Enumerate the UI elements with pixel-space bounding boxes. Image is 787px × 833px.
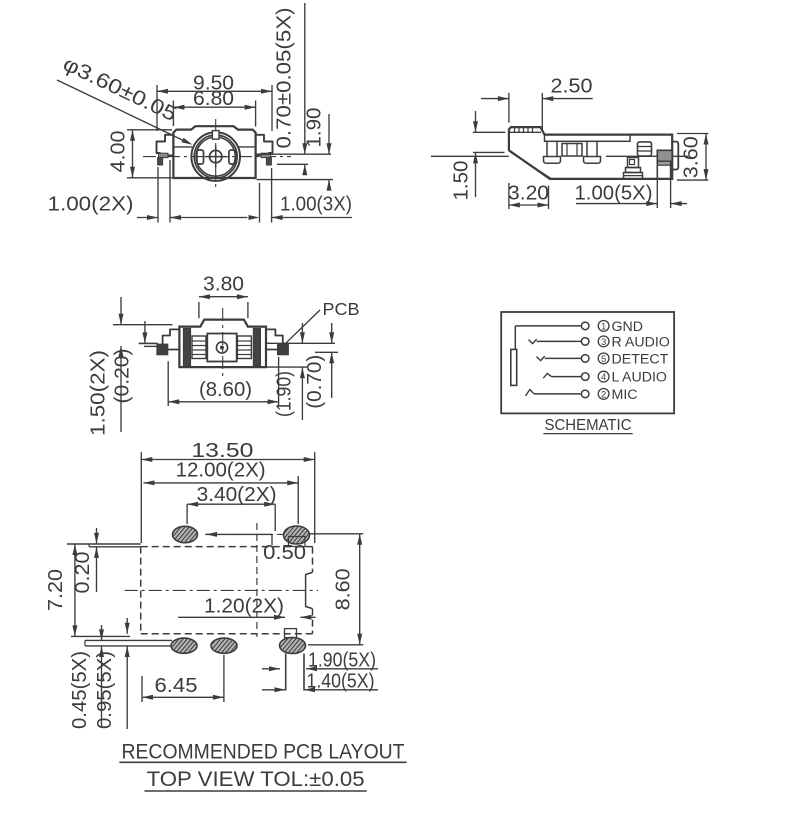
svg-text:MIC: MIC	[612, 387, 638, 403]
svg-text:RECOMMENDED PCB LAYOUT: RECOMMENDED PCB LAYOUT	[122, 739, 405, 763]
svg-text:1.00(3X): 1.00(3X)	[280, 193, 352, 215]
svg-text:12.00(2X): 12.00(2X)	[176, 459, 266, 481]
svg-text:(1.90): (1.90)	[274, 371, 296, 417]
svg-text:3.20: 3.20	[508, 183, 549, 205]
svg-text:1.20(2X): 1.20(2X)	[204, 596, 284, 618]
svg-text:0.45(5X): 0.45(5X)	[69, 651, 91, 729]
svg-text:4: 4	[601, 372, 606, 383]
svg-text:8.60: 8.60	[333, 568, 355, 610]
svg-text:3: 3	[601, 337, 606, 348]
svg-text:6.80: 6.80	[193, 88, 234, 110]
svg-text:0.50: 0.50	[263, 542, 306, 564]
svg-text:4.00: 4.00	[108, 131, 130, 173]
svg-text:2.50: 2.50	[551, 76, 593, 98]
svg-text:5: 5	[601, 354, 606, 365]
svg-text:1.90: 1.90	[304, 108, 326, 148]
svg-text:0.95(5X): 0.95(5X)	[94, 651, 116, 729]
svg-text:L AUDIO: L AUDIO	[612, 370, 667, 386]
svg-text:1: 1	[601, 321, 606, 332]
svg-text:(0.70): (0.70)	[304, 355, 326, 409]
svg-text:0.70±0.05(5X): 0.70±0.05(5X)	[274, 8, 296, 149]
svg-text:(8.60): (8.60)	[199, 379, 252, 401]
svg-text:TOP VIEW TOL:±0.05: TOP VIEW TOL:±0.05	[147, 767, 365, 791]
svg-text:1.50: 1.50	[451, 161, 473, 201]
svg-text:2: 2	[601, 389, 606, 400]
svg-text:3.80: 3.80	[203, 274, 244, 296]
svg-text:1.50(2X): 1.50(2X)	[88, 350, 110, 436]
svg-text:PCB: PCB	[323, 299, 360, 319]
svg-text:R AUDIO: R AUDIO	[612, 334, 670, 350]
svg-text:6.45: 6.45	[155, 675, 198, 697]
svg-text:DETECT: DETECT	[612, 351, 669, 367]
svg-text:1.00(5X): 1.00(5X)	[575, 182, 653, 204]
svg-text:SCHEMATIC: SCHEMATIC	[545, 417, 632, 434]
svg-text:GND: GND	[612, 319, 644, 335]
svg-text:7.20: 7.20	[45, 569, 67, 611]
svg-text:3.60: 3.60	[681, 136, 703, 178]
svg-text:1.00(2X): 1.00(2X)	[48, 193, 134, 215]
svg-text:0.20: 0.20	[72, 552, 94, 594]
svg-text:(0.20): (0.20)	[112, 349, 134, 404]
